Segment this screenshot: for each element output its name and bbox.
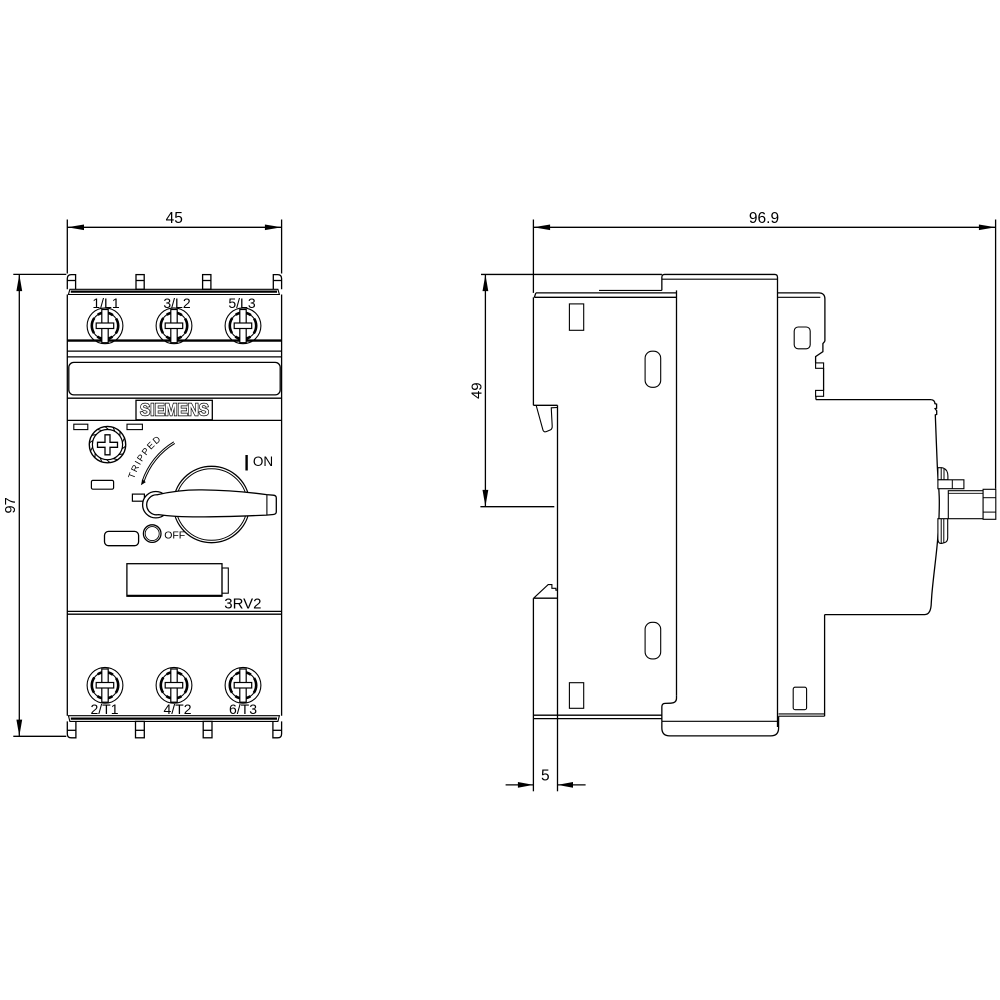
svg-text:ON: ON [253,454,273,469]
svg-text:3RV2: 3RV2 [224,596,261,613]
svg-text:97: 97 [3,497,19,513]
svg-text:3/L2: 3/L2 [163,295,190,311]
svg-text:OFF: OFF [164,530,185,542]
svg-text:5/L3: 5/L3 [228,295,255,311]
svg-text:49: 49 [468,382,485,399]
svg-text:96.9: 96.9 [749,210,779,227]
svg-text:2/T1: 2/T1 [90,701,118,717]
svg-text:SIEMENS: SIEMENS [140,399,209,419]
svg-text:6/T3: 6/T3 [229,701,257,717]
svg-text:1/L1: 1/L1 [92,295,119,311]
svg-text:45: 45 [166,210,183,227]
svg-text:5: 5 [541,767,550,784]
svg-text:4/T2: 4/T2 [163,701,191,717]
